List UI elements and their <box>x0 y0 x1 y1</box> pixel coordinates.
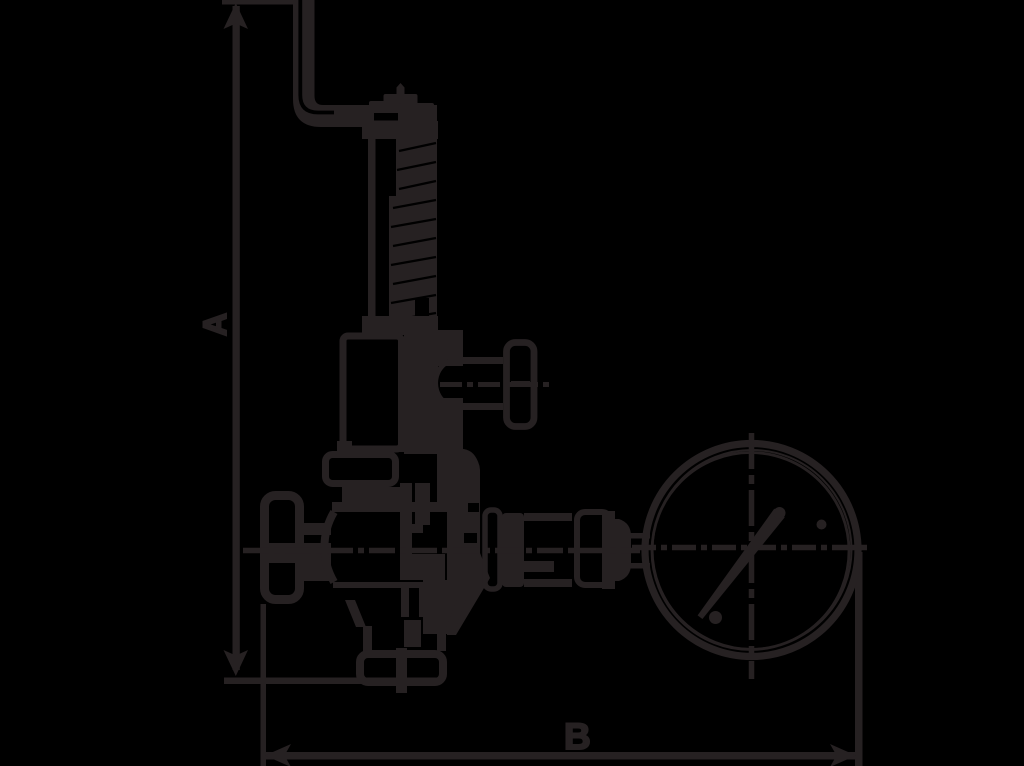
svg-text:B: B <box>564 716 591 757</box>
svg-text:A: A <box>197 313 233 336</box>
